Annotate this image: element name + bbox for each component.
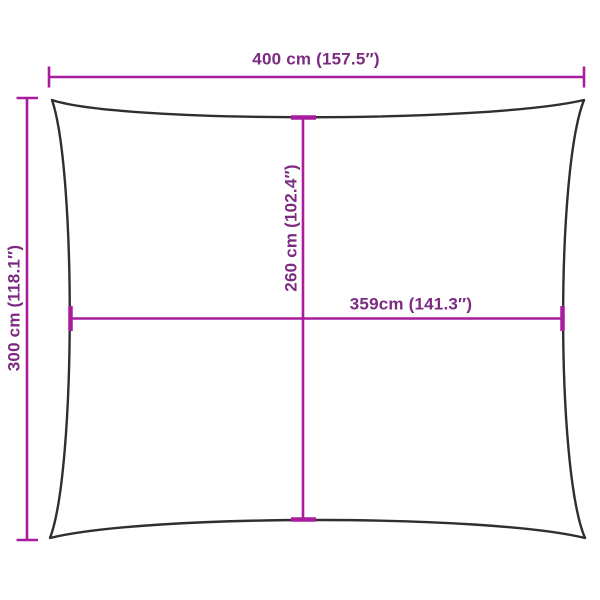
diagram-canvas	[0, 0, 600, 600]
center-horizontal-dimension-label: 359cm (141.3″)	[350, 296, 472, 313]
top-dimension	[49, 67, 584, 88]
top-dimension-label: 400 cm (157.5″)	[252, 51, 379, 68]
left-dimension-label: 300 cm (118.1″)	[6, 245, 23, 371]
center-vertical-dimension-label: 260 cm (102.4″)	[283, 164, 300, 291]
dimension-diagram: 400 cm (157.5″) 300 cm (118.1″) 260 cm (…	[0, 0, 600, 600]
